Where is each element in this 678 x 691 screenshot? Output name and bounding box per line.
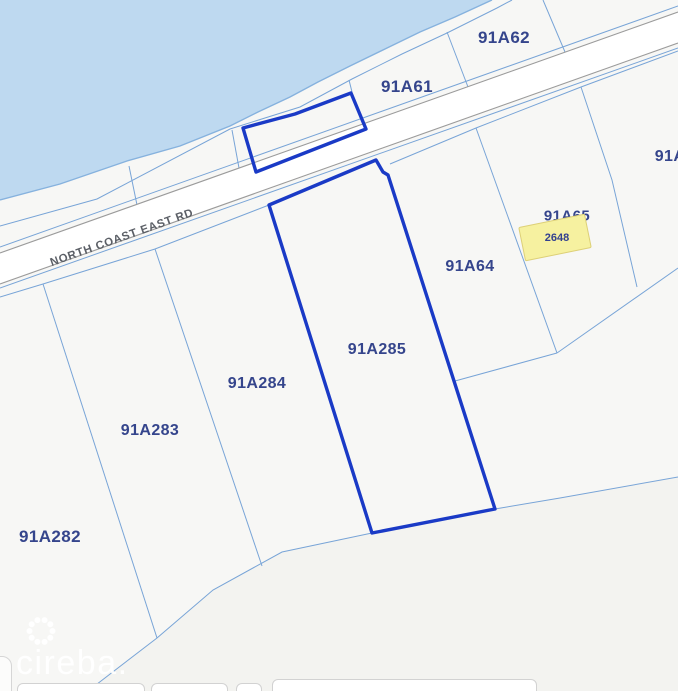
form-field-fragment-1[interactable] xyxy=(17,683,145,691)
panel-corner-fragment[interactable] xyxy=(0,656,12,691)
parcel-label-91a285: 91A285 xyxy=(348,341,406,359)
form-field-fragment-2[interactable] xyxy=(151,683,228,691)
form-field-fragment-4[interactable] xyxy=(272,679,537,691)
parcel-label-91a64: 91A64 xyxy=(445,258,494,276)
parcel-label-91a62: 91A62 xyxy=(478,28,530,48)
parcel-label-91a282: 91A282 xyxy=(19,527,81,547)
map-viewport[interactable]: 91A62 91A61 91A 91A65 91A64 91A285 91A28… xyxy=(0,0,678,691)
cireba-watermark: cireba. xyxy=(16,644,129,683)
map-canvas[interactable] xyxy=(0,0,678,691)
parcel-label-91a283: 91A283 xyxy=(121,422,179,440)
parcel-label-91a-edge: 91A xyxy=(655,148,678,166)
parcel-label-91a61: 91A61 xyxy=(381,77,433,97)
form-field-fragment-3[interactable] xyxy=(236,683,262,691)
parcel-label-91a284: 91A284 xyxy=(228,375,286,393)
selected-plot-number: 2648 xyxy=(545,232,569,244)
